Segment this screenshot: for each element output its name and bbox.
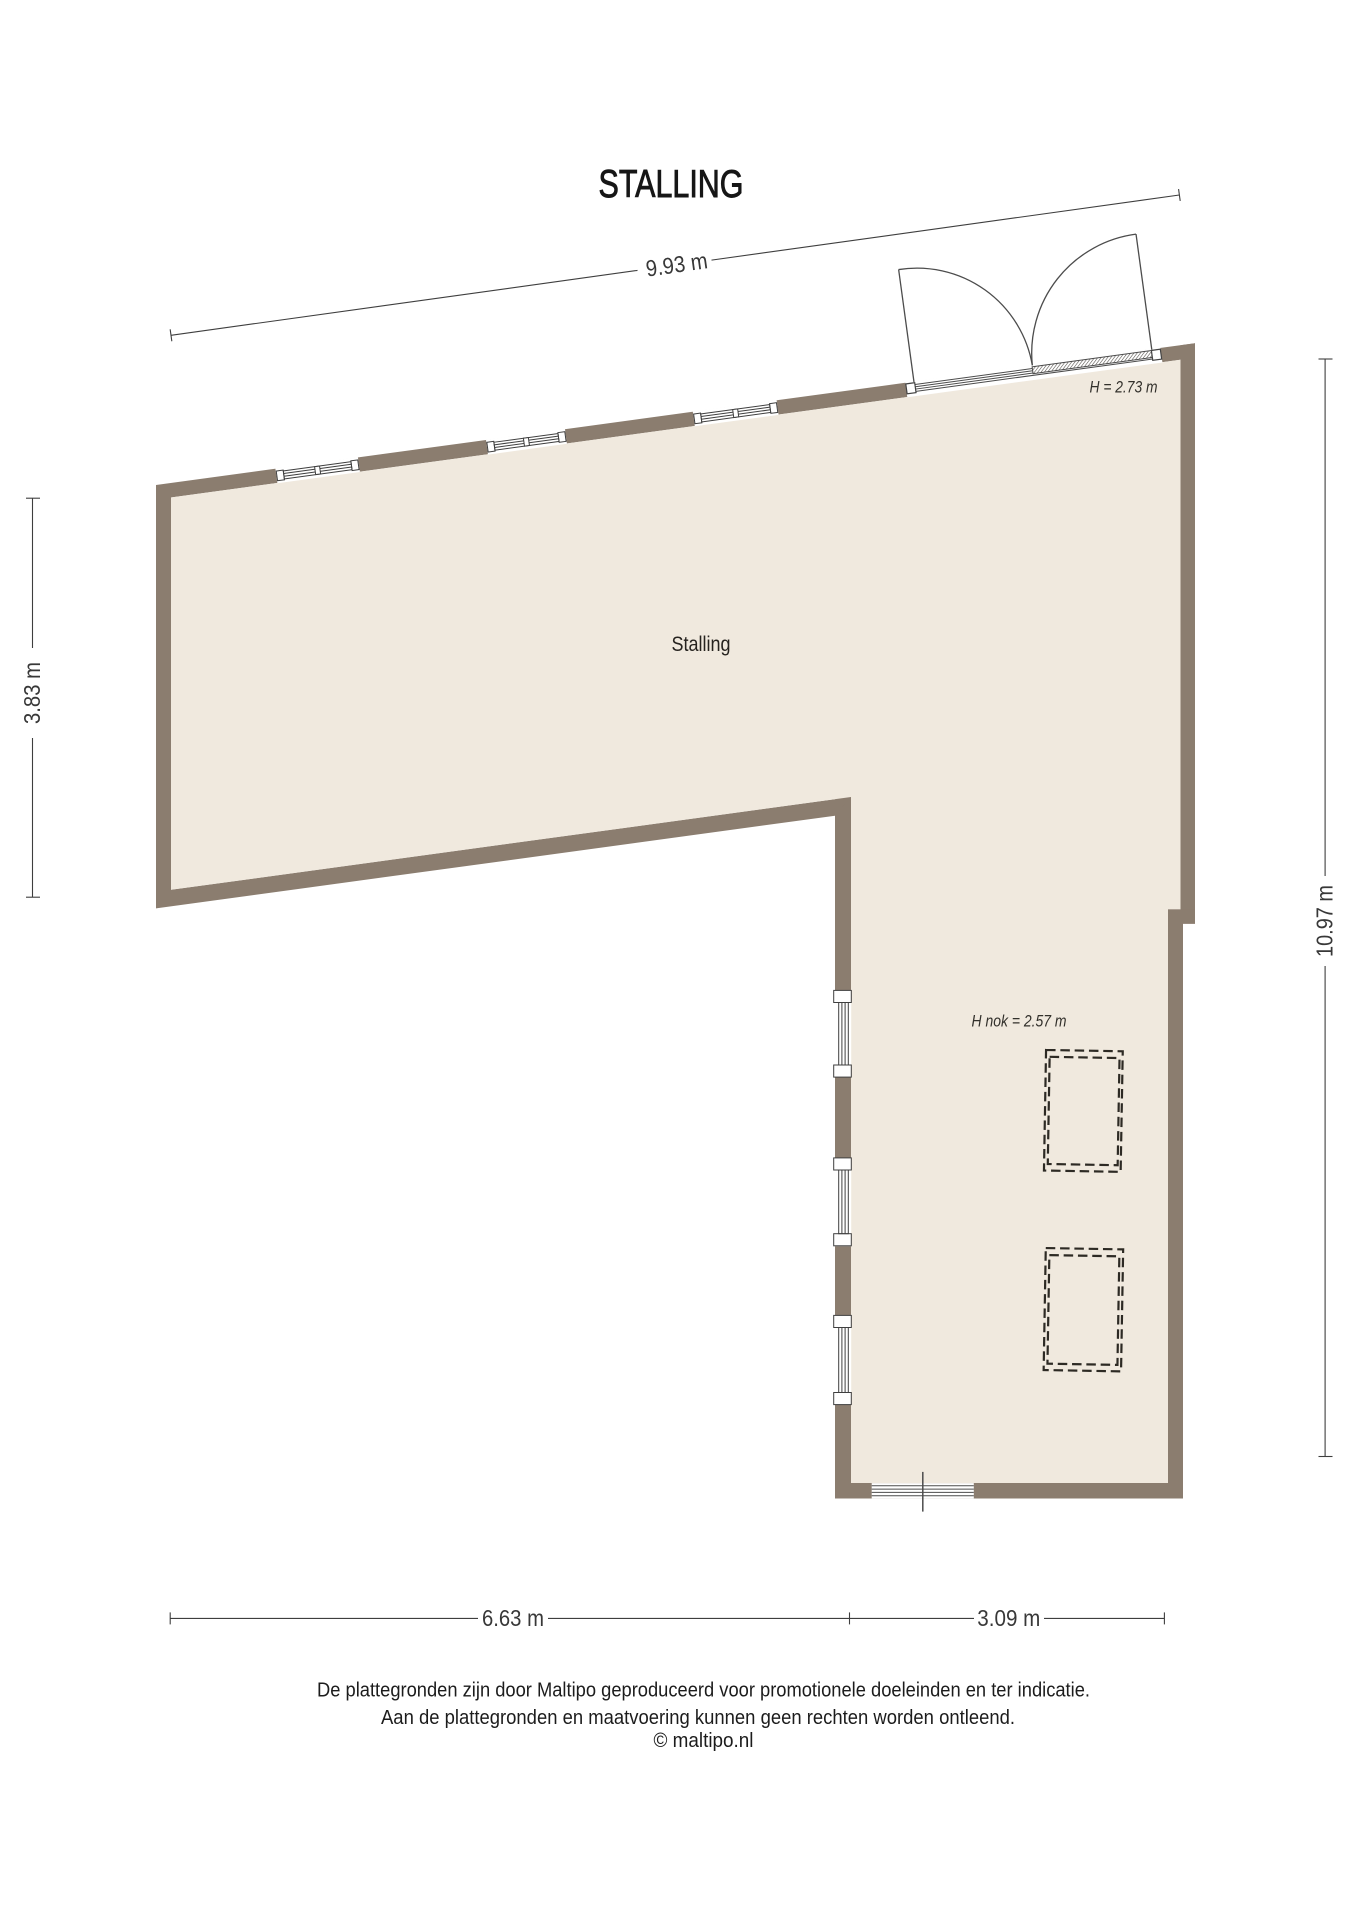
svg-text:Aan de plattegronden en maatvo: Aan de plattegronden en maatvoering kunn… (381, 1707, 1015, 1729)
svg-text:© maltipo.nl: © maltipo.nl (654, 1730, 754, 1752)
svg-text:H nok = 2.57 m: H nok = 2.57 m (972, 1013, 1067, 1031)
svg-text:6.63 m: 6.63 m (482, 1605, 544, 1631)
svg-text:H = 2.73 m: H = 2.73 m (1090, 379, 1158, 397)
svg-text:10.97 m: 10.97 m (1312, 885, 1338, 957)
svg-text:9.93 m: 9.93 m (644, 247, 709, 281)
svg-text:3.83 m: 3.83 m (19, 662, 45, 724)
svg-text:De plattegronden zijn door Mal: De plattegronden zijn door Maltipo gepro… (317, 1680, 1090, 1702)
svg-text:Stalling: Stalling (672, 633, 731, 656)
svg-text:3.09 m: 3.09 m (977, 1605, 1040, 1631)
svg-text:STALLING: STALLING (599, 163, 744, 206)
